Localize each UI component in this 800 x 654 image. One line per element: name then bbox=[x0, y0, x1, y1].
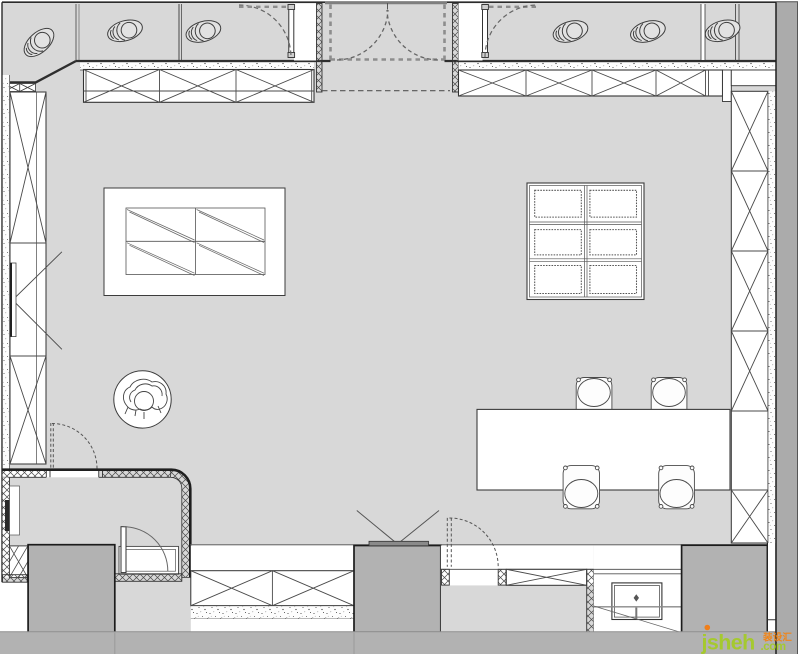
svg-text:装设汇: 装设汇 bbox=[762, 632, 792, 644]
svg-text:jsheh: jsheh bbox=[701, 631, 755, 654]
